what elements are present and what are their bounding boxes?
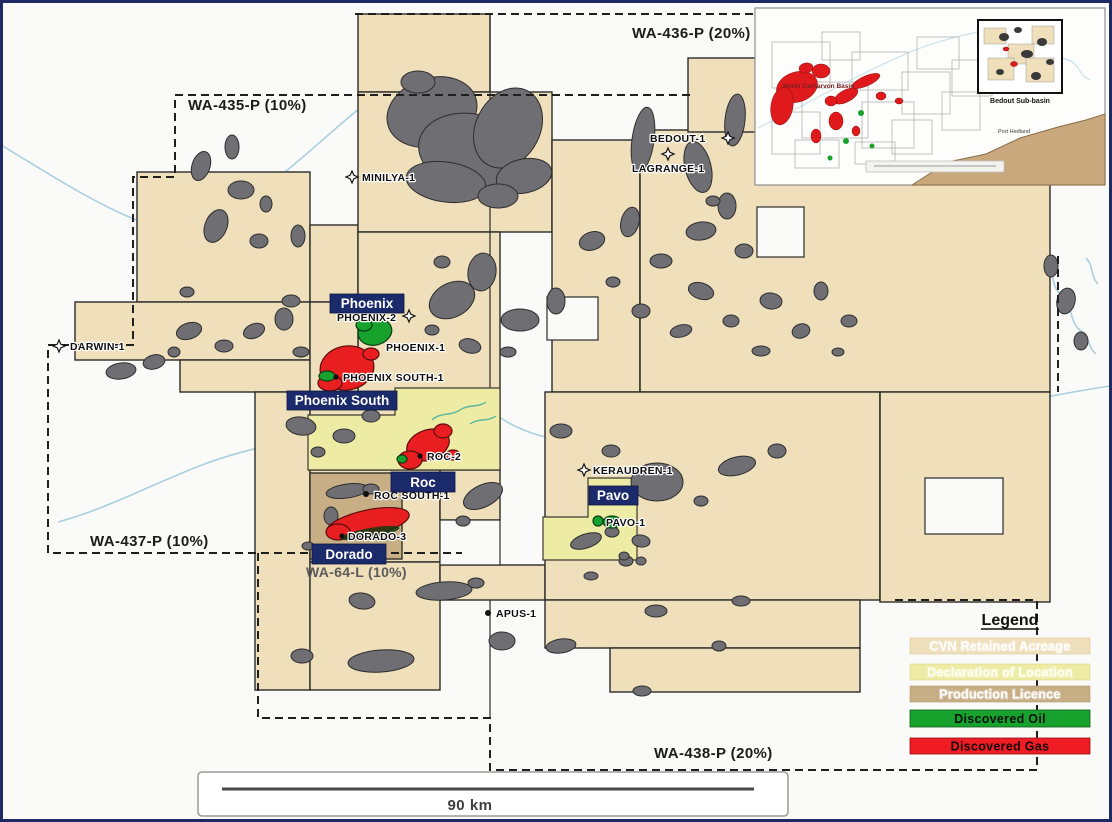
well-label-pavo-1: PAVO-1 xyxy=(606,517,645,529)
well-label-keraudren-1: KERAUDREN-1 xyxy=(593,465,673,477)
wa-437-p-label: WA-437-P (10%) xyxy=(90,533,209,550)
well-label-roc-2: ROC-2 xyxy=(427,451,461,463)
legend-label-declaration: Declaration of Location xyxy=(927,666,1073,680)
well-marker-dorado-3 xyxy=(339,533,344,538)
legend-label-production-licence: Production Licence xyxy=(939,688,1060,702)
scale-bar-box xyxy=(198,772,788,816)
well-marker-roc-south-1 xyxy=(363,491,369,497)
phoenix-south-label: Phoenix South xyxy=(295,393,390,408)
scale-bar: 90 km xyxy=(198,772,788,816)
inset-bedout-box xyxy=(978,20,1062,93)
well-label-apus-1: APUS-1 xyxy=(496,608,536,620)
well-label-phoenix-1: PHOENIX-1 xyxy=(386,342,445,354)
wa-436-p-label: WA-436-P (20%) xyxy=(632,25,751,42)
inset-box-label: Bedout Sub-basin xyxy=(990,98,1050,105)
well-label-dorado-3: DORADO-3 xyxy=(348,531,406,543)
legend-label-discovered-gas: Discovered Gas xyxy=(951,740,1050,754)
well-label-phoenix-south-1: PHOENIX SOUTH-1 xyxy=(343,372,444,384)
well-label-minilya-1: MINILYA-1 xyxy=(362,172,415,184)
legend-label-cvn-acreage: CVN Retained Acreage xyxy=(930,640,1071,654)
well-label-phoenix-2: PHOENIX-2 xyxy=(337,312,396,324)
inset-map: North Carnarvon Basin Port Hedland Bedou… xyxy=(755,8,1105,185)
pavo-label: Pavo xyxy=(597,488,629,503)
roc-label: Roc xyxy=(410,475,436,490)
wa-438-p-label: WA-438-P (20%) xyxy=(654,745,773,762)
wa-435-p-label: WA-435-P (10%) xyxy=(188,97,307,114)
well-label-lagrange-1: LAGRANGE-1 xyxy=(632,163,704,175)
well-label-bedout-1: BEDOUT-1 xyxy=(650,133,706,145)
map-canvas: 200m 100m xyxy=(0,0,1112,822)
well-marker-roc-2 xyxy=(417,453,422,458)
permit-map: 200m 100m xyxy=(0,0,1112,822)
well-label-darwin-1: DARWIN-1 xyxy=(70,341,125,353)
legend-title: Legend xyxy=(982,612,1039,629)
well-marker-apus-1 xyxy=(485,610,491,616)
inset-coast-town-label: Port Hedland xyxy=(998,129,1030,135)
well-marker-pavo-1 xyxy=(593,516,603,526)
inset-basin-label: North Carnarvon Basin xyxy=(783,83,854,90)
legend-label-discovered-oil: Discovered Oil xyxy=(954,712,1046,726)
well-marker-phoenix-south-1 xyxy=(333,374,338,379)
phoenix-label: Phoenix xyxy=(341,296,394,311)
scale-bar-label: 90 km xyxy=(447,797,492,814)
dorado-label: Dorado xyxy=(325,547,372,562)
wa-64-l-label: WA-64-L (10%) xyxy=(306,564,407,580)
